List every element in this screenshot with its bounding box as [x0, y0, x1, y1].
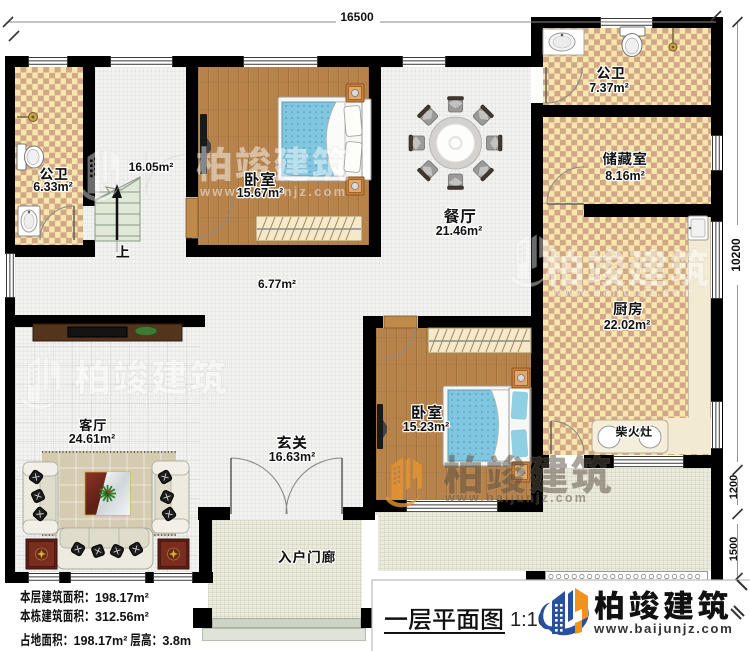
svg-text:www.baijunjz.com: www.baijunjz.com: [78, 392, 222, 406]
svg-text:15.23m²: 15.23m²: [403, 420, 450, 434]
svg-text:1500: 1500: [728, 537, 740, 561]
svg-text:www.baijunjz.com: www.baijunjz.com: [593, 621, 733, 636]
svg-text:www.baijunjz.com: www.baijunjz.com: [551, 285, 695, 299]
svg-text:7.37m²: 7.37m²: [589, 81, 629, 95]
svg-text:10200: 10200: [729, 238, 743, 272]
svg-text:16500: 16500: [340, 10, 374, 24]
svg-text:8.16m²: 8.16m²: [605, 169, 645, 183]
svg-text:6.33m²: 6.33m²: [33, 180, 73, 194]
svg-text:www.baijunjz.com: www.baijunjz.com: [444, 491, 588, 505]
svg-text:3.8m: 3.8m: [162, 634, 191, 648]
svg-text:1200: 1200: [728, 475, 740, 499]
svg-text:6.77m²: 6.77m²: [258, 277, 296, 291]
svg-text:24.61m²: 24.61m²: [69, 432, 116, 446]
svg-text:16.05m²: 16.05m²: [129, 160, 174, 174]
svg-text:22.02m²: 22.02m²: [604, 318, 651, 332]
svg-text:312.56m²: 312.56m²: [95, 610, 149, 624]
svg-text:198.17m²: 198.17m²: [74, 634, 128, 648]
svg-text:21.46m²: 21.46m²: [436, 224, 483, 238]
svg-text:15.67m²: 15.67m²: [237, 186, 284, 200]
svg-text:198.17m²: 198.17m²: [95, 591, 149, 605]
svg-text:16.63m²: 16.63m²: [269, 450, 316, 464]
